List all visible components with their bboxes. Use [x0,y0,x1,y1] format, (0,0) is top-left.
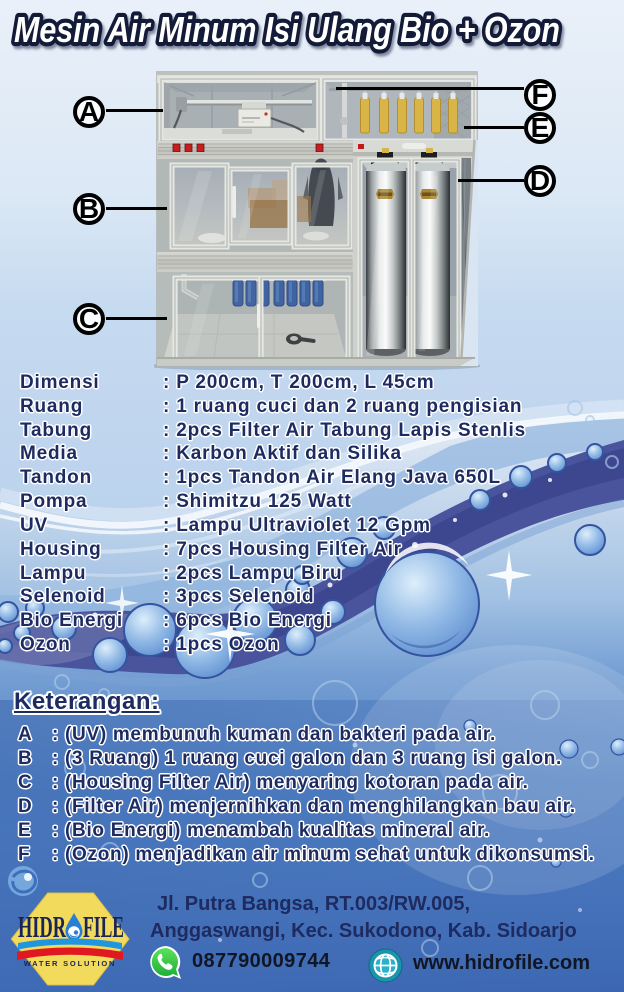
svg-text:Mesin Air Minum Isi Ulang Bio: Mesin Air Minum Isi Ulang Bio + Ozon [14,9,560,50]
svg-text:FILE: FILE [83,909,124,944]
svg-text:WATER SOLUTION: WATER SOLUTION [24,959,117,968]
